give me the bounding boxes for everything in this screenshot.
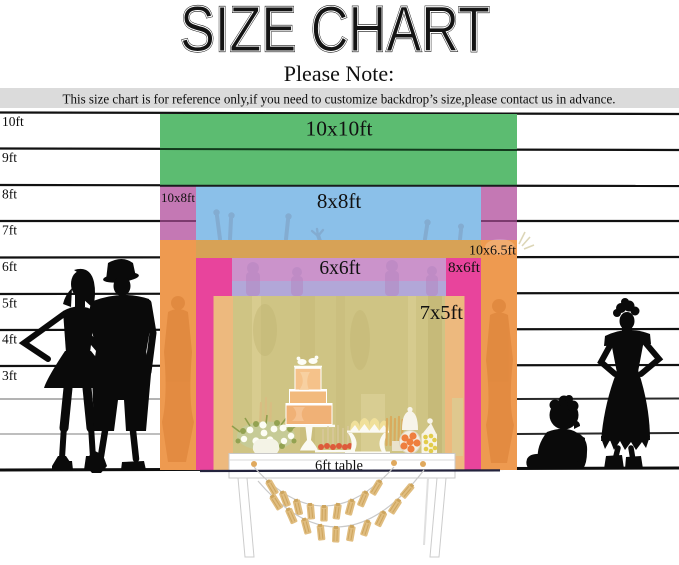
svg-text:3ft: 3ft <box>2 368 17 383</box>
svg-text:4ft: 4ft <box>2 332 17 347</box>
svg-text:8x6ft: 8x6ft <box>448 259 481 276</box>
svg-text:7x5ft: 7x5ft <box>420 302 464 324</box>
svg-text:7ft: 7ft <box>2 223 17 238</box>
svg-text:9ft: 9ft <box>2 150 17 165</box>
svg-text:10ft: 10ft <box>2 114 24 129</box>
svg-text:10x10ft: 10x10ft <box>306 117 373 141</box>
svg-text:8ft: 8ft <box>2 187 17 202</box>
svg-text:6ft: 6ft <box>2 259 17 274</box>
svg-text:5ft: 5ft <box>2 296 17 311</box>
svg-text:Please Note:: Please Note: <box>284 61 395 86</box>
svg-text:SIZE CHART: SIZE CHART <box>180 0 490 65</box>
svg-text:10x6.5ft: 10x6.5ft <box>469 244 516 259</box>
svg-text:10x8ft: 10x8ft <box>161 190 195 205</box>
svg-text:This size chart is for referen: This size chart is for reference only,if… <box>63 92 616 107</box>
svg-text:8x8ft: 8x8ft <box>317 189 361 213</box>
svg-text:6x6ft: 6x6ft <box>319 258 361 279</box>
